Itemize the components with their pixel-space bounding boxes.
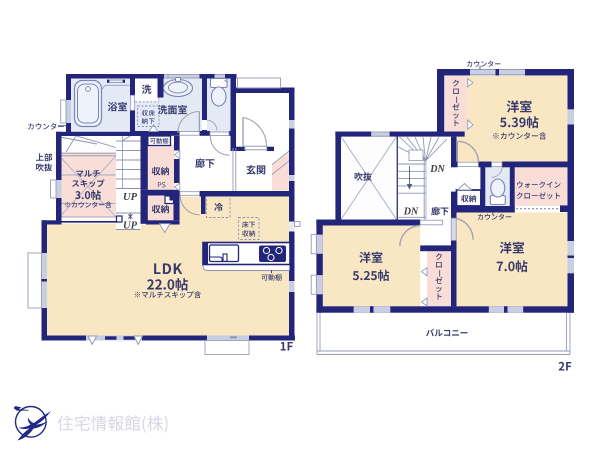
svg-text:DN: DN — [429, 164, 445, 175]
svg-text:UP: UP — [123, 192, 138, 203]
svg-text:UP: UP — [123, 221, 138, 232]
svg-text:DN: DN — [403, 207, 419, 218]
